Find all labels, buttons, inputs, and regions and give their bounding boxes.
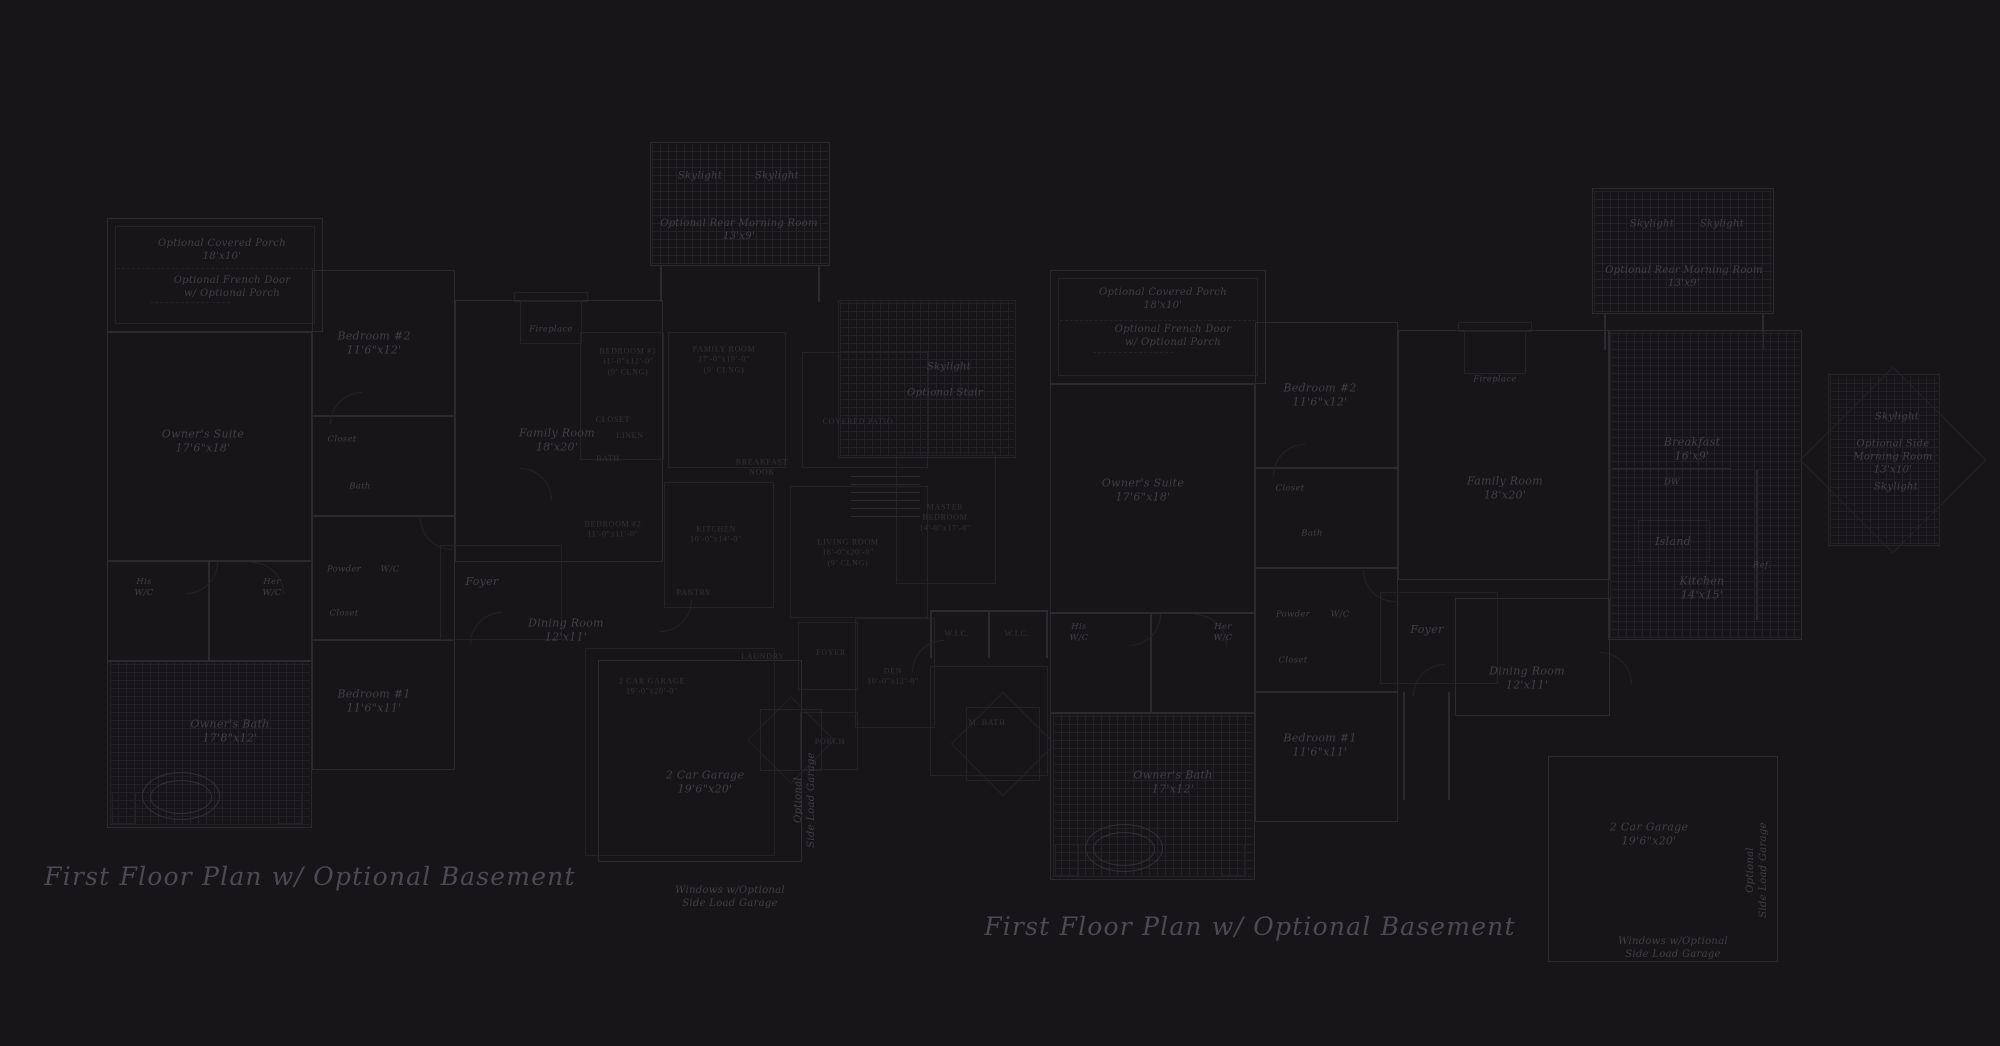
label-m-bath: M. BATH — [969, 718, 1006, 728]
label-master: MASTER BEDROOM 14'-0"x17'-0" — [919, 502, 971, 533]
wall-segment — [1403, 692, 1405, 800]
room-outline — [1464, 330, 1526, 374]
label-bedroom-2: BEDROOM #2 11'-0"x11'-0" — [584, 520, 641, 541]
label-fireplace: Fireplace — [1473, 374, 1516, 385]
door-swing-arc — [1600, 652, 1632, 684]
label-owner-s-bath: Owner's Bath 17'x12' — [1133, 769, 1212, 798]
room-outline — [1455, 598, 1610, 716]
label-laundry: LAUNDRY — [741, 652, 785, 662]
label-optional-french-door: Optional French Door w/ Optional Porch — [174, 274, 291, 300]
door-swing-arc — [660, 600, 692, 632]
label-closet: Closet — [330, 608, 359, 619]
room-outline — [520, 300, 582, 344]
porch-beam-line — [150, 302, 230, 303]
label-closet: Closet — [328, 434, 357, 445]
label-optional-covered-porch: Optional Covered Porch 18'x10' — [1099, 286, 1227, 312]
label-skylight: Skylight — [1630, 218, 1674, 231]
tile-grid — [652, 144, 828, 264]
label-skylight: Skylight — [1875, 411, 1919, 424]
label-w-c: W/C — [380, 564, 399, 575]
wall-segment — [1046, 610, 1048, 658]
label-optional-rear-morning-room: Optional Rear Morning Room 13'x9' — [660, 217, 818, 243]
porch-beam-line — [117, 268, 313, 269]
label-kitchen: KITCHEN 10'-0"x14'-0" — [690, 525, 742, 546]
floor-plan-canvas: Optional Covered Porch 18'x10'Optional F… — [0, 0, 2000, 1046]
label-skylight: Skylight — [678, 170, 722, 183]
label-closet: CLOSET — [596, 415, 630, 425]
wall-segment — [988, 610, 990, 658]
label-owner-s-bath: Owner's Bath 17'8"x12' — [190, 718, 269, 747]
label-closet: Closet — [1279, 655, 1308, 666]
wall-segment — [850, 516, 920, 517]
label-family-room: FAMILY ROOM 17'-0"x19'-0" (9' CLNG) — [693, 344, 756, 375]
label-her: Her W/C — [262, 577, 281, 599]
wall-segment — [930, 610, 1048, 612]
label-optional: Optional Side Load Garage — [792, 752, 818, 848]
label-bedroom-3: BEDROOM #3 11'-0"x12'-0" (9' CLNG) — [599, 346, 656, 377]
wall-segment — [1604, 314, 1606, 350]
label-closet: Closet — [1276, 483, 1305, 494]
label-dining-room: Dining Room 12'x11' — [1489, 665, 1565, 694]
label-foyer: Foyer — [465, 575, 498, 589]
label-ref: Ref. — [1753, 560, 1771, 571]
label-optional: Optional Side Load Garage — [1744, 822, 1770, 918]
label-skylight: Skylight — [1700, 218, 1744, 231]
label-owner-s-suite: Owner's Suite 17'6"x18' — [1102, 477, 1184, 506]
label-dining-room: Dining Room 12'x11' — [528, 617, 604, 646]
wall-segment — [850, 500, 920, 501]
label-w-c: W/C — [1330, 609, 1349, 620]
label-breakfast: Breakfast 16'x9' — [1664, 436, 1720, 465]
label-linen: LINEN — [616, 431, 644, 441]
wall-segment — [818, 266, 820, 302]
room-outline — [312, 416, 455, 516]
label-breakfast: BREAKFAST NOOK — [736, 458, 788, 479]
label-covered-patio: COVERED PATIO — [823, 417, 894, 427]
label-2-car-garage: 2 Car Garage 19'6"x20' — [666, 769, 745, 798]
label-foyer: FOYER — [816, 648, 846, 658]
label-2-car-garage: 2 Car Garage 19'6"x20' — [1610, 821, 1689, 850]
room-outline — [514, 292, 588, 302]
label-bath: BATH — [596, 454, 620, 464]
label-windows-w-optional: Windows w/Optional Side Load Garage — [1618, 935, 1728, 961]
label-optional-stair: Optional Stair — [907, 387, 983, 400]
label-optional-covered-porch: Optional Covered Porch 18'x10' — [158, 237, 286, 263]
label-w-i-c: W.I.C. — [1004, 629, 1029, 639]
label-her: Her W/C — [1213, 622, 1232, 644]
bathtub — [1093, 832, 1155, 866]
label-skylight: Skylight — [1874, 481, 1918, 494]
bathtub — [150, 780, 212, 814]
label-bedroom-2: Bedroom #2 11'6"x12' — [337, 330, 410, 359]
plan-title-left: First Floor Plan w/ Optional Basement — [44, 861, 576, 894]
plan-title-right: First Floor Plan w/ Optional Basement — [984, 911, 1516, 944]
porch-beam-line — [1060, 320, 1256, 321]
label-his: His W/C — [134, 577, 153, 599]
label-family-room: Family Room 18'x20' — [1467, 475, 1543, 504]
label-owner-s-suite: Owner's Suite 17'6"x18' — [162, 428, 244, 457]
label-2-car-garage: 2 CAR GARAGE 19'-0"x20'-0" — [619, 677, 685, 698]
label-dw: DW — [1664, 477, 1680, 488]
wall-segment — [850, 508, 920, 509]
wall-segment — [850, 484, 920, 485]
label-optional-french-door: Optional French Door w/ Optional Porch — [1115, 323, 1232, 349]
label-powder: Powder — [327, 564, 361, 575]
label-bedroom-2: Bedroom #2 11'6"x12' — [1283, 382, 1356, 411]
tile-grid — [840, 302, 1014, 456]
wall-segment — [1448, 692, 1450, 800]
wall-segment — [850, 492, 920, 493]
label-den: DEN 10'-0"x12'-0" — [867, 667, 919, 688]
label-optional-rear-morning-room: Optional Rear Morning Room 13'x9' — [1605, 264, 1763, 290]
label-bedroom-1: Bedroom #1 11'6"x11' — [337, 688, 410, 717]
label-bedroom-1: Bedroom #1 11'6"x11' — [1283, 732, 1356, 761]
label-skylight: Skylight — [755, 170, 799, 183]
label-skylight: Skylight — [927, 361, 971, 374]
label-fireplace: Fireplace — [529, 324, 572, 335]
label-foyer: Foyer — [1410, 623, 1443, 637]
room-outline — [1458, 322, 1532, 332]
label-kitchen: Kitchen 14'x15' — [1679, 575, 1724, 604]
wall-segment — [660, 266, 662, 302]
label-island: Island — [1655, 535, 1691, 549]
label-living-room: LIVING ROOM 16'-0"x20'-0" (9' CLNG) — [817, 537, 878, 568]
tile-grid — [1594, 190, 1772, 312]
label-his: His W/C — [1069, 622, 1088, 644]
label-porch: PORCH — [815, 737, 845, 747]
label-family-room: Family Room 18'x20' — [519, 427, 595, 456]
label-w-i-c: W.I.C. — [944, 629, 969, 639]
label-optional-side: Optional Side Morning Room 13'x10' — [1853, 438, 1932, 477]
wall-segment — [850, 476, 920, 477]
label-powder: Powder — [1276, 609, 1310, 620]
label-pantry: PANTRY — [676, 588, 711, 598]
label-windows-w-optional: Windows w/Optional Side Load Garage — [675, 884, 785, 910]
label-bath: Bath — [1301, 528, 1322, 539]
label-bath: Bath — [349, 481, 370, 492]
porch-beam-line — [1093, 352, 1173, 353]
